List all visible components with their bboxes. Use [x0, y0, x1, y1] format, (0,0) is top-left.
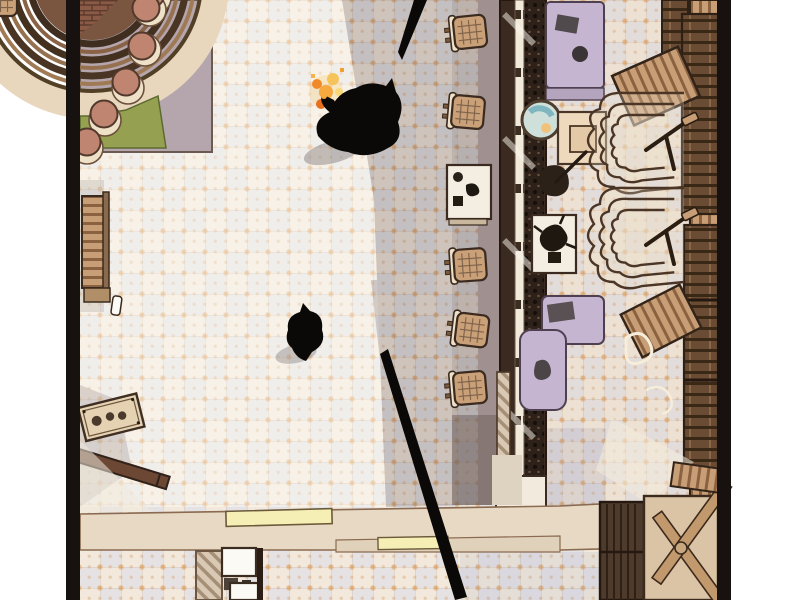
light-slat-1 [226, 509, 332, 527]
service-table-left [447, 165, 491, 225]
lavender-bench-top [546, 2, 604, 100]
stage [0, 0, 216, 164]
hatch-door [196, 551, 222, 600]
panel-frame-right [717, 0, 731, 600]
floor-tint-below-band [460, 552, 600, 600]
armchair-1 [588, 93, 699, 193]
sink [522, 101, 560, 139]
comic-page [0, 0, 800, 600]
scene-art [0, 0, 800, 600]
white-panels [222, 548, 263, 600]
armchair-2 [588, 188, 699, 288]
service-table-right [532, 215, 576, 273]
panel-frame-left [66, 0, 80, 600]
slat-door [600, 502, 644, 600]
